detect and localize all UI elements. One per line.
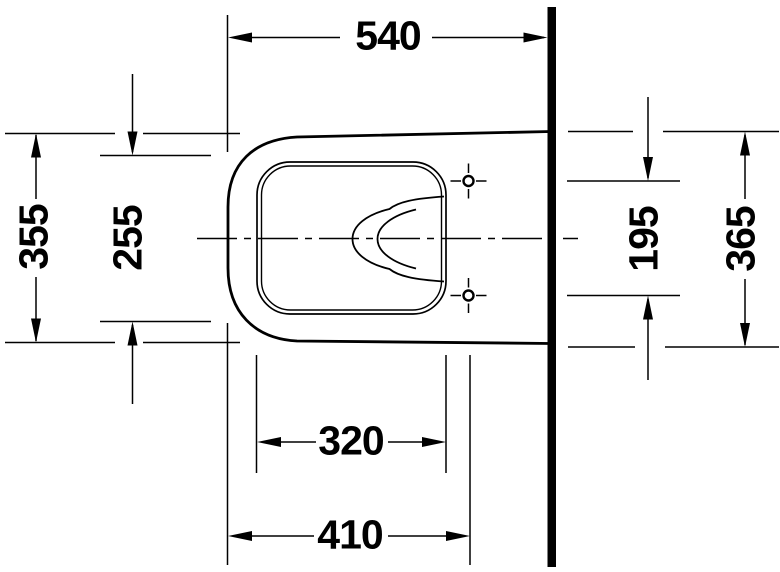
wall-line — [548, 7, 557, 567]
dim-label-410: 410 — [317, 515, 382, 556]
dim-label-355: 355 — [14, 204, 55, 269]
technical-drawing-canvas — [0, 0, 780, 572]
dim-label-195: 195 — [624, 206, 665, 271]
dim-label-540: 540 — [355, 16, 420, 57]
dim-label-255: 255 — [108, 205, 149, 270]
technical-drawing: 540 355 255 195 365 320 410 — [0, 0, 780, 572]
dim-label-365: 365 — [721, 206, 762, 271]
dim-label-320: 320 — [318, 421, 383, 462]
